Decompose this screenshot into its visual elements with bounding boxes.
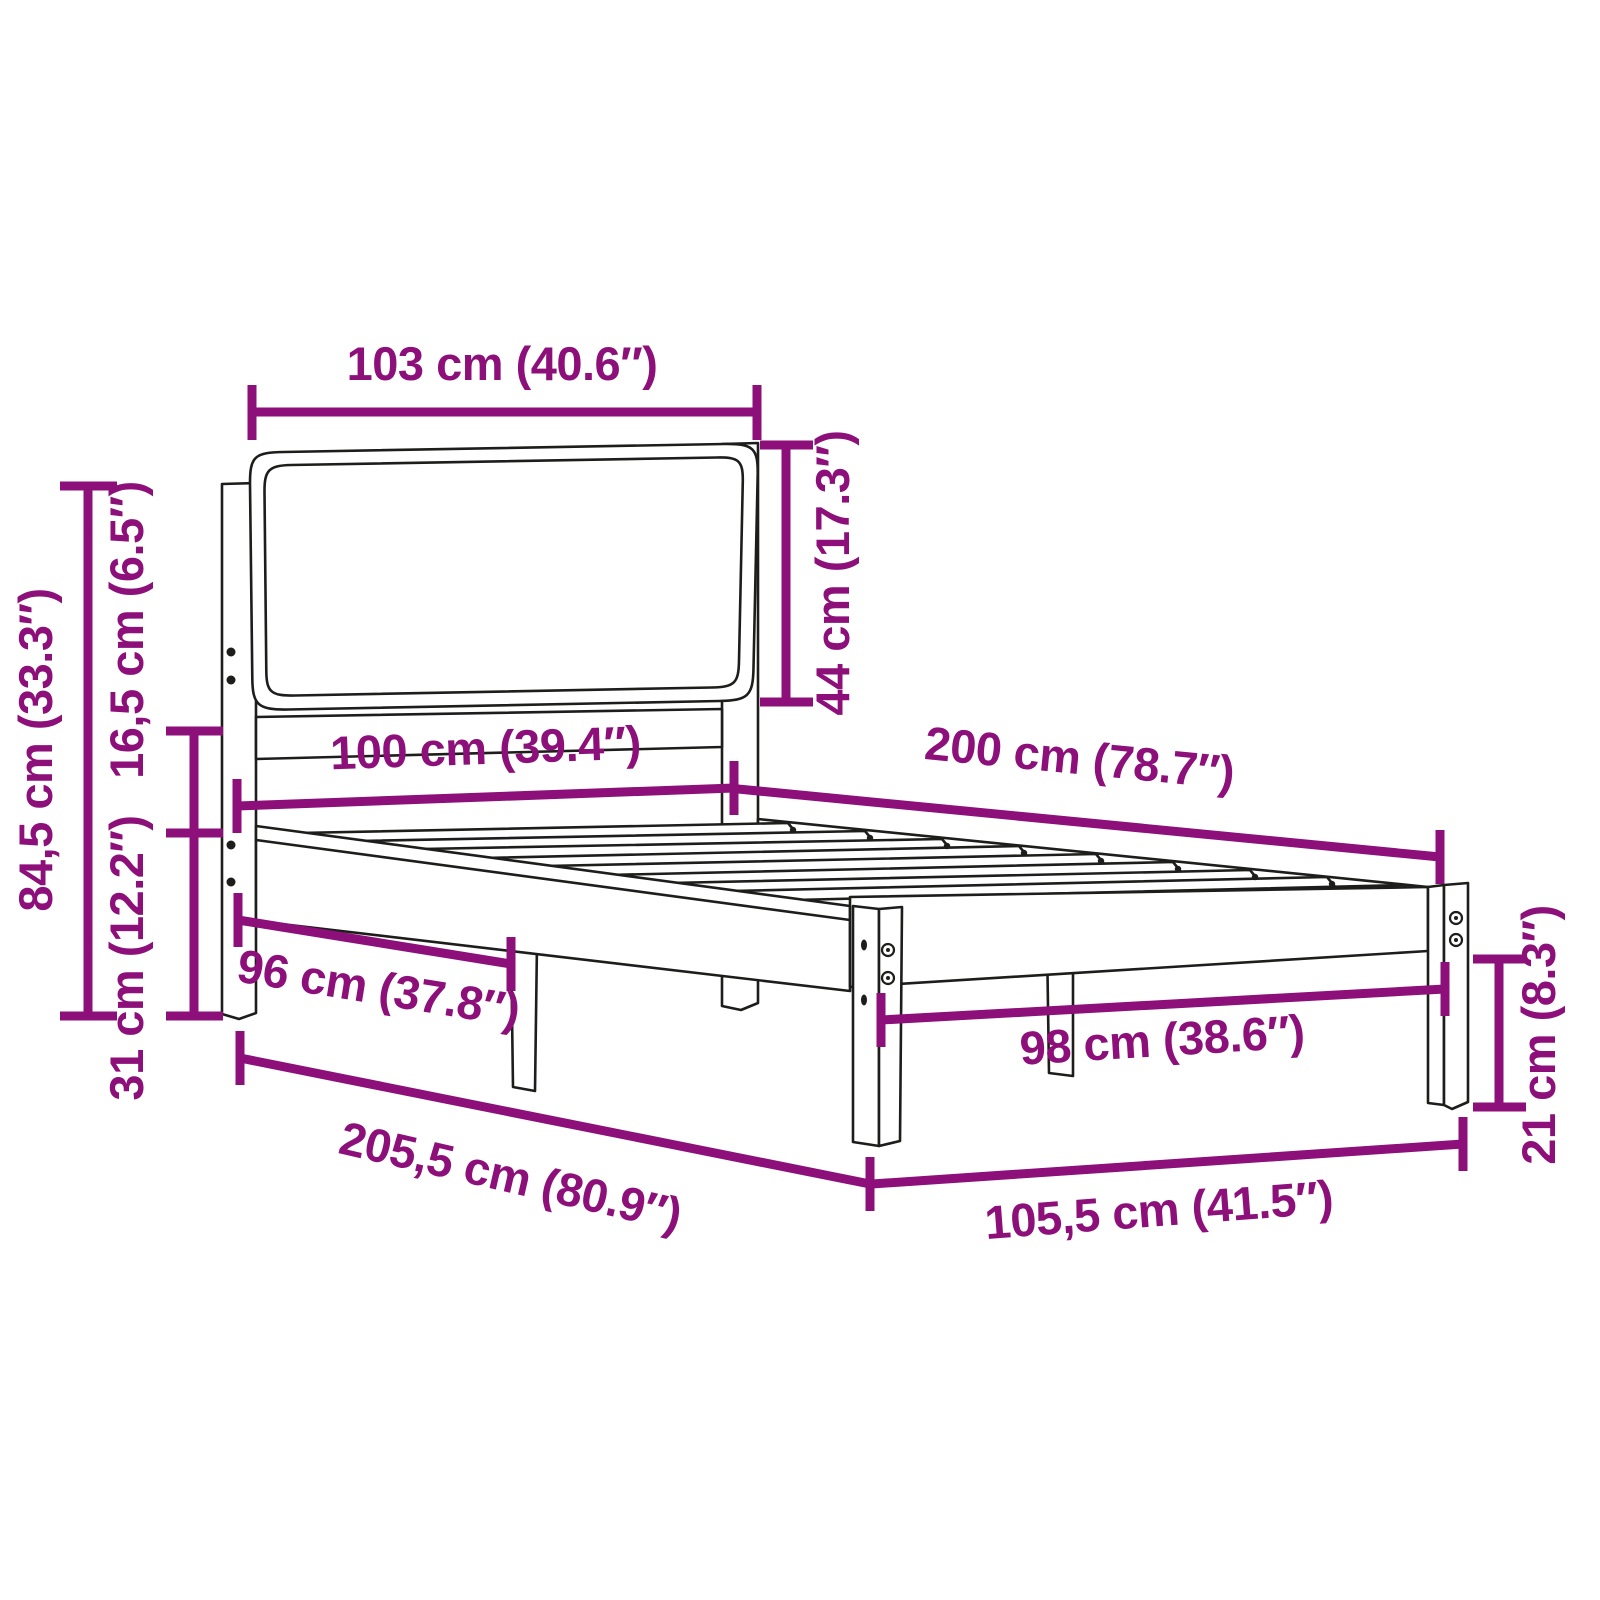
post-screw <box>227 676 236 685</box>
dim-frame-top-height-label: 16,5 cm (6.5″) <box>100 481 153 779</box>
dim-frame-top-height: 16,5 cm (6.5″) 31 cm (12.2″) <box>100 481 223 1100</box>
leg-screw <box>861 940 867 951</box>
leg-screw <box>1454 916 1458 920</box>
dim-bed-width-label: 100 cm (39.4″) <box>329 716 641 780</box>
diagram-canvas: 103 cm (40.6″) 44 cm (17.3″) 84,5 cm (33… <box>0 0 1600 1600</box>
dim-total-height-label: 84,5 cm (33.3″) <box>9 588 62 911</box>
slat-screw <box>867 835 873 841</box>
dim-headboard-width-label: 103 cm (40.6″) <box>347 337 658 390</box>
slat-screw <box>1175 866 1181 872</box>
slat-screw <box>1098 858 1104 864</box>
slat-screw <box>1252 874 1258 880</box>
dim-total-width: 105,5 cm (41.5″) <box>872 1117 1463 1249</box>
dim-bed-length-label: 200 cm (78.7″) <box>922 716 1236 799</box>
post-screw <box>227 878 236 887</box>
slat-screw <box>1021 850 1027 856</box>
leg-screw <box>886 948 890 952</box>
leg-screw <box>861 995 867 1006</box>
dim-leg-height-label: 21 cm (8.3″) <box>1512 905 1565 1164</box>
headboard-panel <box>250 444 758 710</box>
leg-screw <box>886 976 890 980</box>
slat-screw <box>790 827 796 833</box>
dim-total-width-label: 105,5 cm (41.5″) <box>983 1170 1335 1249</box>
post-screw <box>227 648 236 657</box>
dim-head-inner-width-label: 96 cm (37.8″) <box>234 939 524 1037</box>
dim-total-length-label: 205,5 cm (80.9″) <box>335 1111 687 1241</box>
dim-headboard-height-label: 44 cm (17.3″) <box>806 430 859 715</box>
dim-headboard-width: 103 cm (40.6″) <box>252 337 757 440</box>
slat-screw <box>944 843 950 849</box>
dim-total-length: 205,5 cm (80.9″) <box>240 1031 870 1241</box>
dim-headboard-height: 44 cm (17.3″) <box>760 430 859 715</box>
post-screw <box>227 841 236 850</box>
dim-clearance-height-label: 31 cm (12.2″) <box>100 815 153 1100</box>
dim-leg-height: 21 cm (8.3″) <box>1473 905 1565 1164</box>
bed-dimension-diagram: 103 cm (40.6″) 44 cm (17.3″) 84,5 cm (33… <box>0 0 1600 1600</box>
leg-screw <box>1454 938 1458 942</box>
foot-rail <box>850 887 1428 987</box>
slat-screw <box>1329 881 1335 887</box>
